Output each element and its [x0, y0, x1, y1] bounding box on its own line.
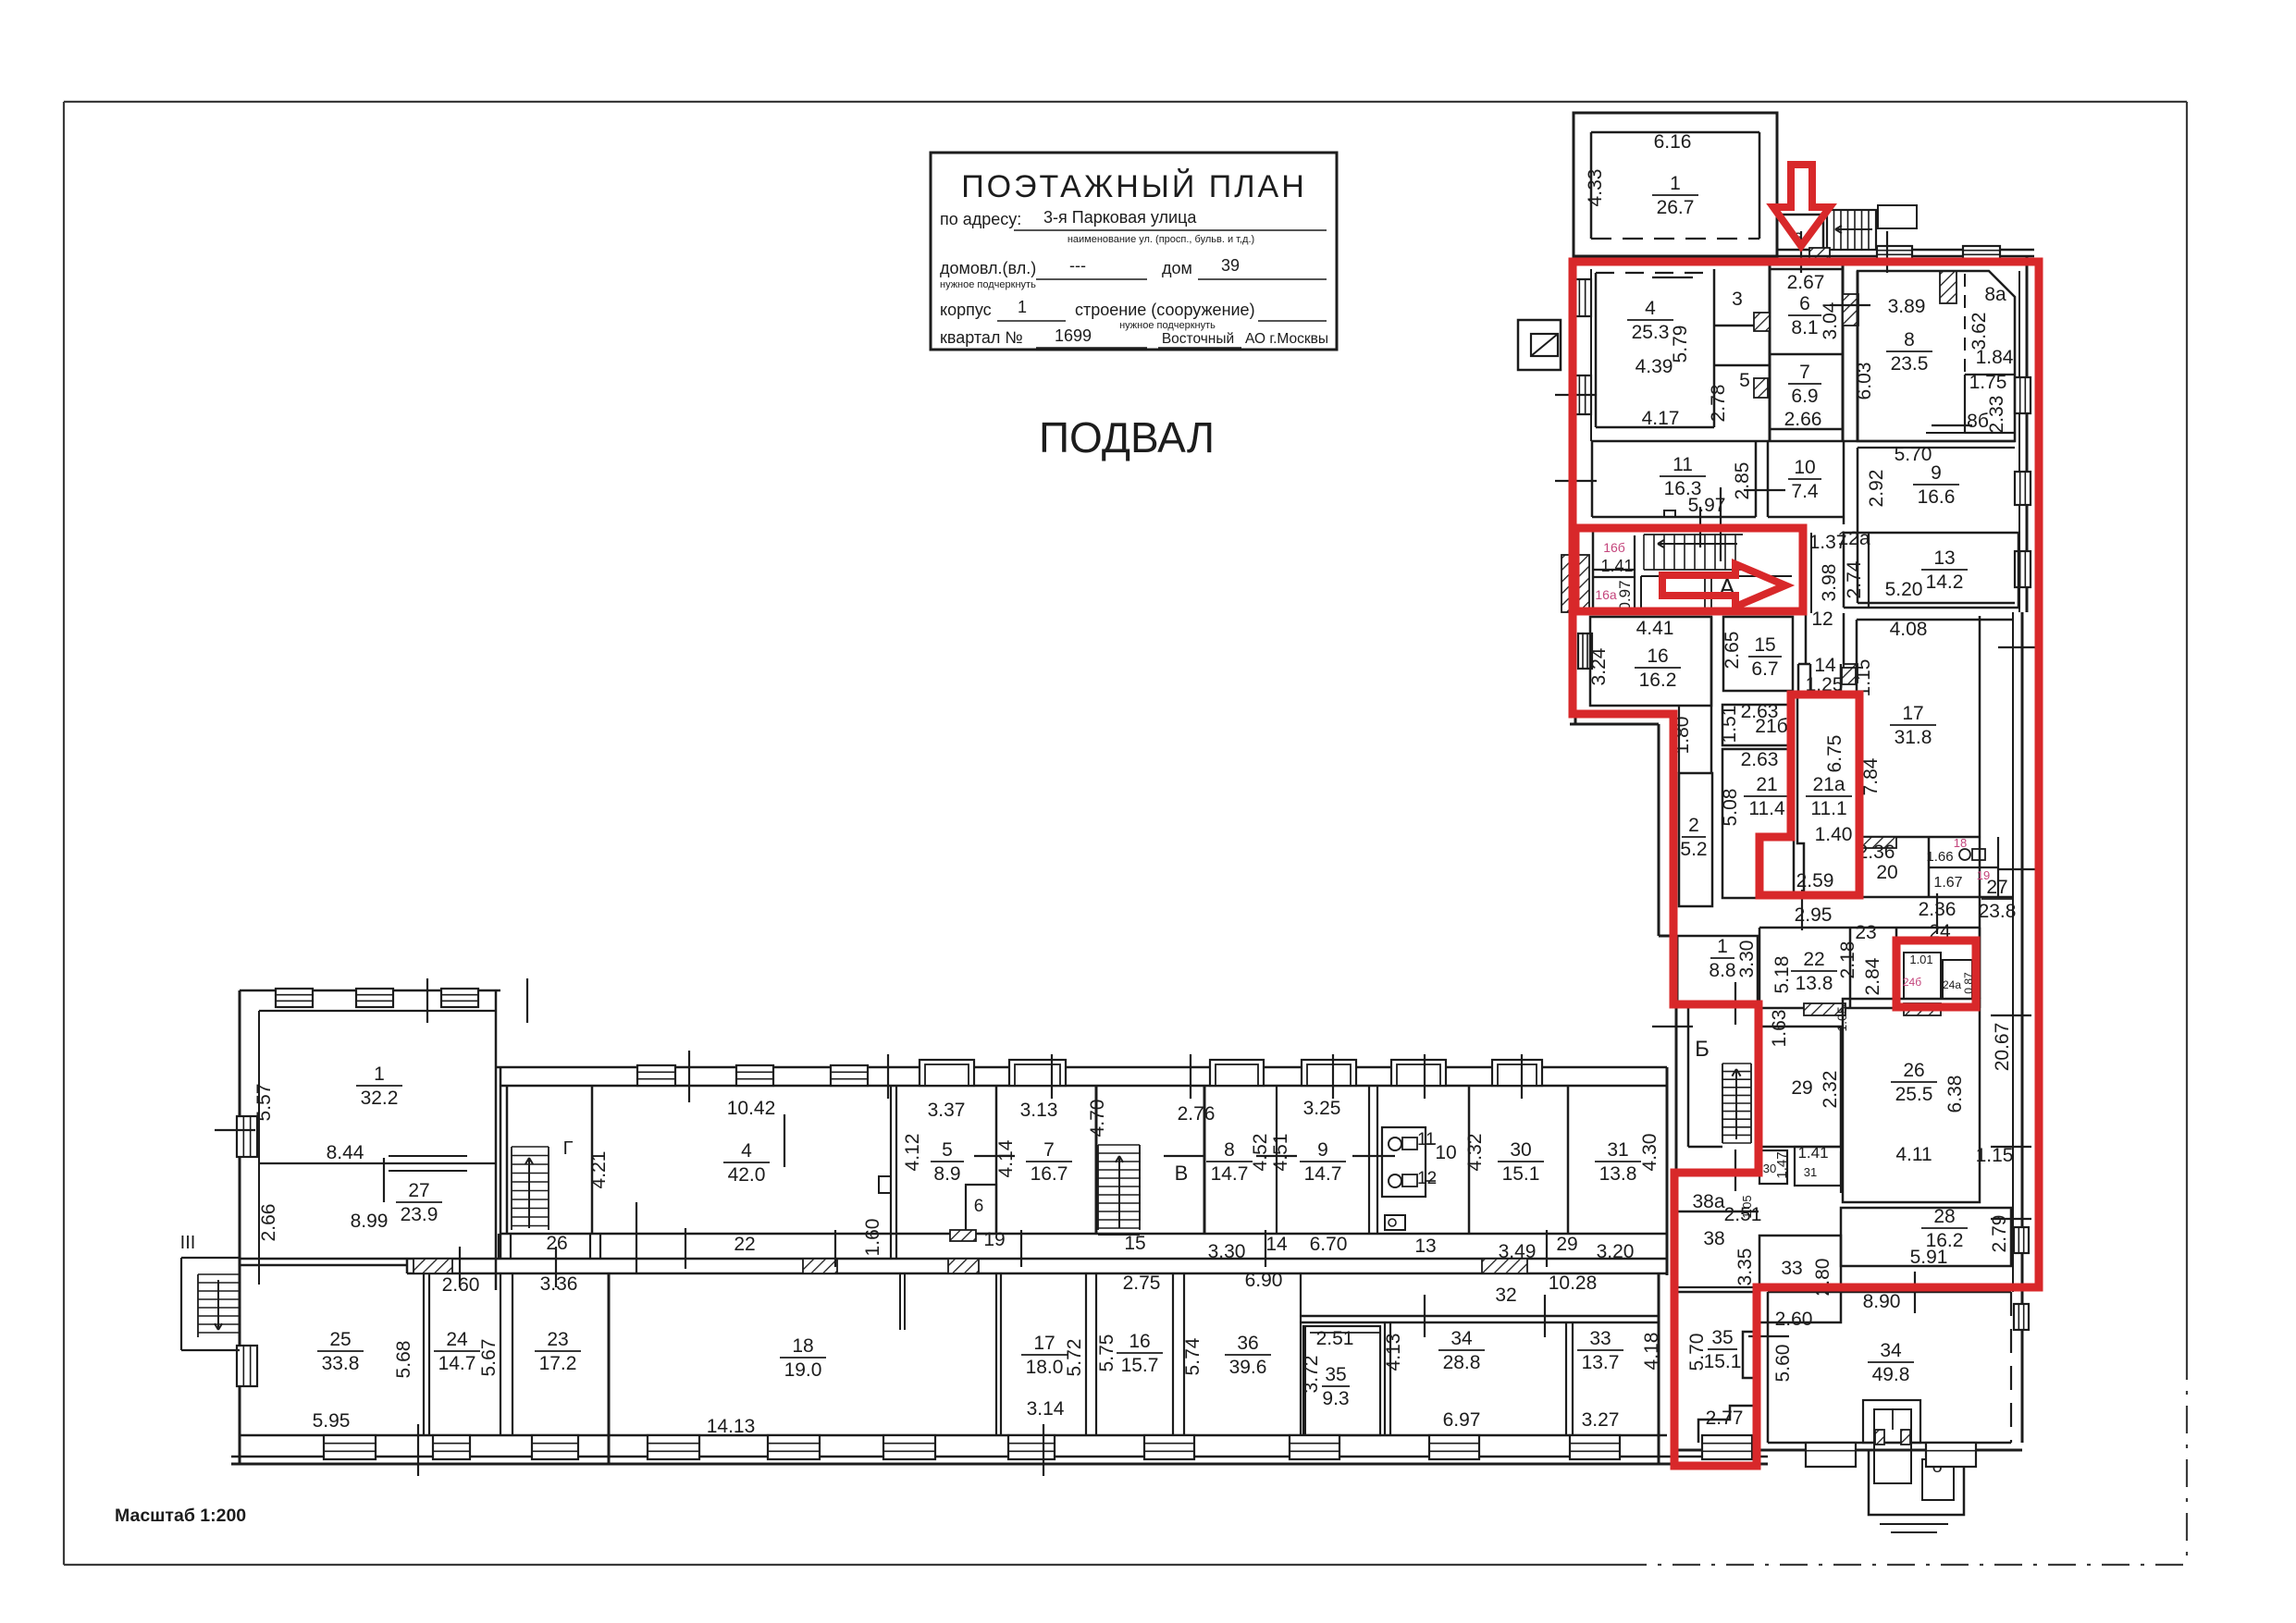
svg-text:15: 15: [1124, 1233, 1145, 1254]
svg-text:3-я Парковая улица: 3-я Парковая улица: [1043, 208, 1197, 227]
svg-text:6: 6: [974, 1197, 984, 1216]
svg-text:24а: 24а: [1943, 978, 1961, 991]
svg-text:20: 20: [1876, 862, 1897, 883]
svg-text:26: 26: [1903, 1060, 1924, 1081]
svg-text:2.65: 2.65: [1722, 632, 1743, 670]
svg-text:16: 16: [1129, 1331, 1150, 1352]
svg-text:4: 4: [741, 1140, 752, 1162]
svg-text:4.51: 4.51: [1270, 1134, 1291, 1172]
svg-text:нужное подчеркнуть: нужное подчеркнуть: [1119, 320, 1216, 331]
svg-text:24: 24: [446, 1329, 468, 1350]
svg-text:7: 7: [1799, 362, 1810, 383]
svg-text:3.89: 3.89: [1888, 296, 1926, 317]
svg-text:27: 27: [408, 1180, 429, 1201]
svg-text:3.49: 3.49: [1499, 1241, 1537, 1262]
svg-text:16.6: 16.6: [1918, 486, 1956, 508]
svg-text:9.3: 9.3: [1322, 1388, 1349, 1409]
svg-text:5.20: 5.20: [1885, 579, 1923, 600]
svg-text:1.41: 1.41: [1797, 1144, 1828, 1162]
svg-text:3.36: 3.36: [540, 1273, 578, 1295]
svg-text:Б: Б: [1695, 1037, 1710, 1062]
svg-text:6.7: 6.7: [1751, 658, 1778, 680]
svg-text:13.7: 13.7: [1582, 1352, 1620, 1373]
svg-text:3: 3: [1732, 289, 1743, 310]
svg-text:3.13: 3.13: [1020, 1100, 1058, 1121]
svg-text:3.04: 3.04: [1820, 301, 1841, 339]
svg-text:5.95: 5.95: [313, 1410, 351, 1432]
svg-text:наименование ул. (просп., буль: наименование ул. (просп., бульв. и т,д.): [1068, 234, 1254, 245]
svg-text:28: 28: [1933, 1206, 1955, 1227]
svg-text:3.98: 3.98: [1819, 564, 1840, 602]
svg-text:3.24: 3.24: [1588, 647, 1610, 685]
svg-text:35: 35: [1325, 1364, 1346, 1385]
svg-text:6.90: 6.90: [1245, 1270, 1283, 1291]
svg-text:8б: 8б: [1967, 411, 1989, 432]
svg-text:Масштаб 1:200: Масштаб 1:200: [115, 1506, 246, 1526]
svg-text:29: 29: [1556, 1234, 1577, 1255]
svg-text:4.17: 4.17: [1642, 408, 1680, 429]
svg-text:корпус: корпус: [940, 301, 992, 319]
svg-text:17: 17: [1033, 1333, 1055, 1354]
svg-text:4: 4: [1645, 298, 1656, 319]
svg-text:5: 5: [1739, 370, 1750, 391]
svg-text:6.03: 6.03: [1854, 363, 1875, 400]
svg-text:22: 22: [1803, 949, 1824, 970]
svg-text:3.27: 3.27: [1582, 1409, 1620, 1431]
svg-text:3.37: 3.37: [928, 1100, 966, 1121]
svg-text:1: 1: [1717, 936, 1728, 957]
svg-text:49.8: 49.8: [1872, 1364, 1910, 1385]
svg-text:6.97: 6.97: [1443, 1409, 1481, 1431]
svg-text:9: 9: [1931, 462, 1942, 484]
svg-text:5.70: 5.70: [1895, 444, 1932, 465]
svg-text:2: 2: [1688, 815, 1699, 836]
svg-text:12а: 12а: [1837, 528, 1870, 549]
svg-text:23.9: 23.9: [401, 1204, 438, 1225]
svg-text:8.1: 8.1: [1791, 317, 1818, 338]
svg-text:16: 16: [1647, 646, 1668, 667]
svg-text:15.1: 15.1: [1704, 1351, 1742, 1372]
svg-text:14.13: 14.13: [707, 1416, 756, 1437]
svg-text:1.40: 1.40: [1815, 824, 1853, 845]
svg-text:33: 33: [1589, 1328, 1611, 1349]
svg-text:4.18: 4.18: [1641, 1333, 1662, 1371]
svg-text:4.13: 4.13: [1383, 1334, 1404, 1371]
svg-text:В: В: [1175, 1162, 1189, 1185]
svg-text:10: 10: [1435, 1142, 1456, 1163]
svg-text:32: 32: [1495, 1285, 1516, 1306]
svg-text:2.79: 2.79: [1989, 1215, 2010, 1253]
svg-text:14.7: 14.7: [1304, 1163, 1342, 1185]
svg-text:2.78: 2.78: [1708, 385, 1729, 423]
svg-text:5.67: 5.67: [478, 1339, 500, 1377]
svg-text:1.60: 1.60: [862, 1219, 883, 1257]
svg-text:32.2: 32.2: [361, 1088, 399, 1109]
svg-text:2.67: 2.67: [1787, 272, 1825, 293]
svg-text:1.51: 1.51: [1719, 706, 1740, 744]
svg-text:15.7: 15.7: [1121, 1355, 1159, 1376]
svg-text:III: III: [180, 1233, 196, 1253]
svg-text:12: 12: [1417, 1169, 1437, 1188]
svg-text:8.44: 8.44: [327, 1142, 364, 1163]
svg-text:4.33: 4.33: [1585, 169, 1606, 207]
svg-text:42.0: 42.0: [728, 1164, 766, 1186]
svg-text:3.20: 3.20: [1597, 1241, 1635, 1262]
svg-text:6: 6: [1799, 293, 1810, 314]
svg-text:2.95: 2.95: [1795, 904, 1833, 926]
svg-text:2.60: 2.60: [1775, 1309, 1813, 1330]
svg-text:4.41: 4.41: [1636, 618, 1674, 639]
svg-text:18: 18: [792, 1335, 813, 1357]
svg-text:5.79: 5.79: [1670, 326, 1691, 363]
svg-text:ПОЭТАЖНЫЙ ПЛАН: ПОЭТАЖНЫЙ ПЛАН: [961, 169, 1307, 204]
svg-text:26.7: 26.7: [1657, 197, 1695, 218]
svg-text:нужное подчеркнуть: нужное подчеркнуть: [940, 279, 1036, 290]
svg-text:11: 11: [1417, 1130, 1436, 1150]
svg-text:4.11: 4.11: [1895, 1144, 1932, 1165]
svg-text:1.75: 1.75: [1969, 372, 2007, 393]
svg-text:4.14: 4.14: [995, 1139, 1017, 1177]
svg-text:15.1: 15.1: [1502, 1163, 1540, 1185]
svg-text:1.63: 1.63: [1769, 1010, 1790, 1048]
svg-text:4.30: 4.30: [1639, 1134, 1660, 1172]
svg-text:3.30: 3.30: [1736, 941, 1758, 978]
svg-text:2.66: 2.66: [258, 1204, 279, 1242]
svg-text:строение (сооружение): строение (сооружение): [1075, 301, 1255, 319]
svg-text:2.33: 2.33: [1986, 396, 2007, 434]
svg-text:18.0: 18.0: [1026, 1357, 1064, 1378]
svg-text:31: 31: [1607, 1139, 1628, 1161]
svg-text:39.6: 39.6: [1229, 1357, 1267, 1378]
svg-text:19: 19: [1977, 868, 1990, 882]
svg-text:по адресу:: по адресу:: [940, 210, 1021, 228]
svg-text:1.84: 1.84: [1976, 347, 2014, 368]
svg-text:33.8: 33.8: [322, 1353, 360, 1374]
svg-text:23.5: 23.5: [1891, 353, 1929, 375]
svg-text:1.47: 1.47: [1774, 1151, 1790, 1178]
svg-text:2.85: 2.85: [1732, 462, 1753, 500]
svg-text:6.75: 6.75: [1824, 735, 1845, 773]
svg-text:5.18: 5.18: [1771, 956, 1793, 994]
svg-text:21а: 21а: [1812, 774, 1845, 795]
svg-text:8а: 8а: [1984, 284, 2006, 305]
svg-text:4.12: 4.12: [902, 1134, 923, 1172]
svg-text:18: 18: [1954, 836, 1967, 850]
svg-text:1.41: 1.41: [1600, 557, 1633, 575]
svg-text:4.21: 4.21: [588, 1151, 610, 1189]
svg-text:2.74: 2.74: [1844, 560, 1865, 598]
svg-text:16а: 16а: [1595, 587, 1617, 602]
svg-text:6.70: 6.70: [1310, 1234, 1348, 1255]
svg-text:3.62: 3.62: [1969, 313, 1990, 350]
svg-text:1.67: 1.67: [1933, 875, 1962, 891]
svg-text:6.38: 6.38: [1944, 1076, 1966, 1113]
svg-text:34: 34: [1450, 1328, 1473, 1349]
svg-text:7: 7: [1043, 1139, 1055, 1161]
svg-text:2.84: 2.84: [1862, 957, 1883, 995]
svg-text:5.74: 5.74: [1182, 1337, 1204, 1375]
svg-text:16.7: 16.7: [1031, 1163, 1068, 1185]
svg-text:---: ---: [1069, 256, 1086, 275]
svg-text:4.08: 4.08: [1890, 619, 1928, 640]
svg-text:14: 14: [1814, 655, 1836, 676]
svg-text:2.92: 2.92: [1866, 470, 1887, 508]
svg-text:АО г.Москвы: АО г.Москвы: [1245, 331, 1328, 347]
svg-text:13: 13: [1414, 1236, 1436, 1257]
svg-text:1: 1: [374, 1064, 385, 1085]
svg-text:2.75: 2.75: [1123, 1273, 1161, 1294]
svg-text:11: 11: [1673, 454, 1693, 475]
svg-text:3.35: 3.35: [1734, 1248, 1756, 1286]
svg-text:23: 23: [547, 1329, 568, 1350]
svg-text:30: 30: [1510, 1139, 1531, 1161]
svg-text:38а: 38а: [1692, 1191, 1724, 1212]
svg-text:23: 23: [1855, 922, 1876, 943]
svg-text:25: 25: [329, 1329, 351, 1350]
svg-text:8: 8: [1224, 1139, 1235, 1161]
svg-text:3.25: 3.25: [1303, 1098, 1341, 1119]
svg-text:25.3: 25.3: [1632, 322, 1670, 343]
svg-text:4.52: 4.52: [1250, 1134, 1271, 1172]
svg-text:2.63: 2.63: [1741, 749, 1779, 770]
svg-text:8: 8: [1904, 329, 1915, 350]
svg-text:13.8: 13.8: [1796, 973, 1833, 994]
svg-text:11.4: 11.4: [1748, 798, 1785, 819]
svg-text:2.59: 2.59: [1796, 870, 1834, 891]
svg-text:38: 38: [1703, 1228, 1724, 1249]
svg-text:Г: Г: [563, 1138, 574, 1159]
svg-text:дом: дом: [1162, 259, 1192, 277]
svg-text:39: 39: [1221, 256, 1240, 275]
svg-text:домовл.(вл.): домовл.(вл.): [940, 259, 1036, 277]
svg-text:35: 35: [1711, 1327, 1733, 1348]
svg-text:31: 31: [1804, 1165, 1817, 1179]
svg-text:1: 1: [1018, 298, 1027, 316]
svg-text:1.01: 1.01: [1909, 953, 1932, 966]
svg-text:ПОДВАЛ: ПОДВАЛ: [1039, 413, 1215, 461]
svg-text:8.8: 8.8: [1709, 960, 1735, 981]
svg-text:13: 13: [1933, 547, 1955, 569]
svg-text:12: 12: [1811, 609, 1833, 630]
svg-text:8.99: 8.99: [351, 1211, 389, 1232]
svg-text:3.30: 3.30: [1208, 1241, 1246, 1262]
svg-text:4.32: 4.32: [1464, 1134, 1486, 1172]
svg-text:2.63: 2.63: [1741, 701, 1779, 722]
svg-text:14.7: 14.7: [1211, 1163, 1249, 1185]
svg-text:20.67: 20.67: [1992, 1023, 2013, 1072]
svg-text:квартал №: квартал №: [940, 328, 1023, 347]
svg-text:3.14: 3.14: [1027, 1398, 1065, 1420]
svg-text:10: 10: [1794, 457, 1815, 478]
svg-text:19: 19: [983, 1229, 1005, 1250]
svg-text:14.2: 14.2: [1926, 572, 1964, 593]
svg-text:1.66: 1.66: [1926, 849, 1953, 865]
svg-text:33: 33: [1781, 1258, 1802, 1279]
svg-text:31.8: 31.8: [1895, 727, 1932, 748]
svg-text:28.8: 28.8: [1443, 1352, 1481, 1373]
svg-text:0.97: 0.97: [1616, 580, 1634, 610]
svg-text:4.39: 4.39: [1636, 356, 1673, 377]
svg-text:2.51: 2.51: [1316, 1328, 1354, 1349]
svg-text:19.0: 19.0: [784, 1359, 822, 1381]
svg-text:5.72: 5.72: [1064, 1339, 1085, 1377]
svg-text:9: 9: [1317, 1139, 1328, 1161]
svg-text:1: 1: [1670, 173, 1681, 194]
svg-text:24б: 24б: [1903, 976, 1921, 989]
svg-text:7.4: 7.4: [1791, 481, 1819, 502]
svg-text:17.2: 17.2: [539, 1353, 577, 1374]
svg-text:Восточный: Восточный: [1162, 331, 1234, 347]
svg-text:11.1: 11.1: [1810, 798, 1846, 819]
svg-text:13.8: 13.8: [1599, 1163, 1637, 1185]
svg-text:8.9: 8.9: [933, 1163, 960, 1185]
svg-text:36: 36: [1237, 1333, 1258, 1354]
svg-text:5.60: 5.60: [1772, 1345, 1794, 1383]
svg-text:5.08: 5.08: [1720, 789, 1741, 827]
svg-text:34: 34: [1880, 1340, 1902, 1361]
svg-text:6.16: 6.16: [1654, 131, 1692, 153]
svg-text:5.91: 5.91: [1910, 1247, 1948, 1268]
svg-text:6.9: 6.9: [1791, 386, 1818, 407]
svg-text:5: 5: [942, 1139, 953, 1161]
svg-text:14.7: 14.7: [438, 1353, 476, 1374]
svg-text:15: 15: [1754, 634, 1775, 656]
svg-text:1699: 1699: [1055, 326, 1092, 345]
svg-text:17: 17: [1902, 703, 1923, 724]
svg-text:16б: 16б: [1603, 540, 1625, 555]
svg-text:5.75: 5.75: [1096, 1334, 1117, 1372]
svg-text:2.32: 2.32: [1820, 1071, 1841, 1109]
svg-text:2.51: 2.51: [1724, 1204, 1762, 1225]
svg-text:5.2: 5.2: [1680, 839, 1707, 860]
svg-text:5.68: 5.68: [393, 1341, 414, 1379]
svg-text:16.2: 16.2: [1639, 670, 1677, 691]
svg-text:22: 22: [734, 1234, 755, 1255]
svg-text:2.18: 2.18: [1837, 941, 1858, 979]
svg-text:5.57: 5.57: [253, 1084, 275, 1122]
svg-text:3.72: 3.72: [1301, 1356, 1322, 1394]
svg-text:14: 14: [1265, 1234, 1288, 1255]
svg-text:25.5: 25.5: [1895, 1084, 1933, 1105]
svg-text:2.66: 2.66: [1784, 409, 1822, 430]
svg-text:23.8: 23.8: [1979, 901, 2017, 922]
svg-text:1.15: 1.15: [1976, 1145, 2014, 1166]
svg-text:29: 29: [1791, 1077, 1812, 1099]
svg-text:2.77: 2.77: [1706, 1408, 1744, 1429]
svg-text:21: 21: [1756, 774, 1777, 795]
svg-text:2.76: 2.76: [1178, 1103, 1216, 1125]
svg-text:10.42: 10.42: [727, 1098, 776, 1119]
svg-text:8.90: 8.90: [1863, 1291, 1901, 1312]
svg-text:10.28: 10.28: [1549, 1273, 1598, 1294]
svg-text:4.70: 4.70: [1087, 1100, 1108, 1137]
